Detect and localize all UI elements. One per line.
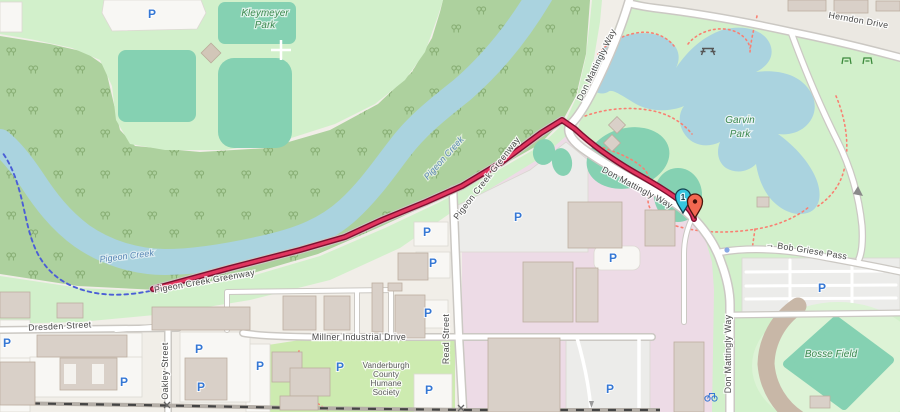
street-label-oakley: Oakley Street: [160, 342, 170, 399]
parking-icon: P: [3, 336, 11, 350]
stadium-label-bosse-field: Bosse Field: [805, 349, 858, 360]
street-label-read-street: Read Street: [441, 314, 451, 364]
poi-label-humane-society: County: [373, 370, 400, 379]
mini-roundabout-icon: [724, 247, 729, 252]
map-canvas[interactable]: P P P P P P P P P P P P P P P Kleymeyer …: [0, 0, 900, 412]
parking-icon: P: [195, 342, 203, 356]
parking-icon: P: [606, 382, 614, 396]
poi-label-humane-society: Vanderburgh: [363, 361, 410, 370]
park-label-garvin: Park: [730, 129, 752, 140]
parking-icon: P: [818, 281, 826, 295]
parking-icon: P: [609, 251, 617, 265]
parking-icon: P: [197, 380, 205, 394]
poi-label-humane-society: Humane: [371, 379, 402, 388]
park-label-kleymeyer: Kleymeyer: [241, 8, 289, 19]
parking-icon: P: [514, 210, 522, 224]
parking-icon: P: [120, 375, 128, 389]
parking-icon: P: [424, 306, 432, 320]
small-lot: [0, 2, 22, 32]
parking-icon: P: [256, 359, 264, 373]
street-label-don-mattingly: Don Mattingly Way: [723, 314, 733, 393]
park-label-garvin: Garvin: [725, 115, 755, 126]
parking-icon: P: [425, 383, 433, 397]
park-label-kleymeyer: Park: [255, 20, 277, 31]
street-label-millner: Millner Industrial Drive: [312, 332, 406, 342]
parking-icon: P: [429, 256, 437, 270]
parking-icon: P: [423, 225, 431, 239]
poi-label-humane-society: Society: [373, 388, 401, 397]
start-marker-number: 1: [681, 193, 686, 202]
parking-icon: P: [336, 360, 344, 374]
end-marker-dot: [693, 199, 697, 203]
parking-icon: P: [148, 7, 156, 21]
